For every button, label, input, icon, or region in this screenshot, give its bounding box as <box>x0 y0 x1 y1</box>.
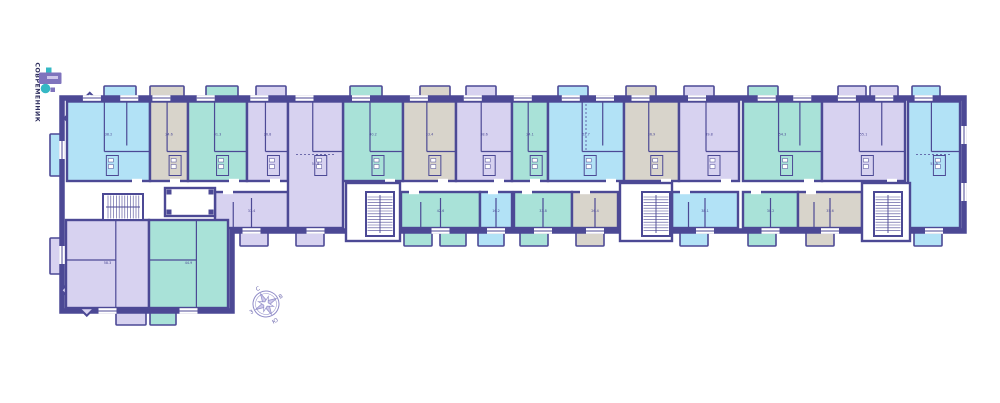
floor-plan-generated: 38.224.641.326.840.233.438.624.152.736.9… <box>50 86 967 325</box>
door-gap <box>409 190 419 194</box>
room-area-label: 24.6 <box>165 133 173 137</box>
logo-icon-circle <box>41 84 51 94</box>
room-area-label: 40.2 <box>369 133 377 137</box>
apartment-unit <box>743 102 822 182</box>
compass-rose: С В Ю З <box>241 278 294 333</box>
door-gap <box>494 179 504 183</box>
door-gap <box>530 179 540 183</box>
door-gap <box>170 179 180 183</box>
apartment-unit <box>343 102 403 182</box>
entrance-vestibule <box>165 188 215 216</box>
bath-fixture <box>108 159 113 163</box>
room-area-label: 16.2 <box>492 209 500 213</box>
room-area-label: 38.2 <box>105 133 113 137</box>
room-area-label: 55.1 <box>860 133 868 137</box>
bath-fixture <box>485 159 490 163</box>
door-gap <box>580 190 590 194</box>
logo-icon-nub <box>51 88 56 93</box>
room-area-label: 26.4 <box>591 209 599 213</box>
bath-fixture <box>108 165 113 169</box>
bath-fixture <box>783 165 788 169</box>
room-area-label: 33.8 <box>539 209 547 213</box>
apartment-unit <box>67 102 150 182</box>
column-post <box>167 190 172 195</box>
bath-fixture <box>374 165 379 169</box>
bath-fixture <box>171 159 176 163</box>
door-gap <box>606 179 616 183</box>
bath-fixture <box>431 159 436 163</box>
room-area-label: 37.4 <box>248 209 256 213</box>
room-area-label: 44.9 <box>185 261 193 265</box>
bath-fixture <box>374 159 379 163</box>
door-gap <box>751 190 761 194</box>
bath-fixture <box>269 165 274 169</box>
room-area-label: 35.6 <box>826 209 834 213</box>
door-gap <box>229 179 239 183</box>
room-area-label: 26.8 <box>264 133 272 137</box>
bath-fixture <box>586 165 591 169</box>
room-area-label: 53.9 <box>930 162 938 166</box>
bath-fixture <box>431 165 436 169</box>
door-gap <box>804 179 814 183</box>
apartment-unit <box>679 102 739 182</box>
column-post <box>167 210 172 215</box>
apartment-unit <box>624 102 679 182</box>
room-area-label: 33.4 <box>426 133 434 137</box>
room-area-label: 38.1 <box>701 209 709 213</box>
room-area-label: 38.6 <box>480 133 488 137</box>
bath-fixture <box>219 165 224 169</box>
door-gap <box>806 190 816 194</box>
bath-fixture <box>653 165 658 169</box>
bath-fixture <box>586 159 591 163</box>
room-area-label: 41.3 <box>214 133 222 137</box>
apartment-unit <box>188 102 247 182</box>
logo: СОВРЕМЕННИК ·························· <box>34 63 62 123</box>
bath-fixture <box>532 159 537 163</box>
bath-fixture <box>171 165 176 169</box>
room-area-label: 51.8 <box>312 162 320 166</box>
apartment-unit <box>456 102 512 182</box>
bath-fixture <box>783 159 788 163</box>
door-gap <box>132 179 142 183</box>
bath-fixture <box>863 159 868 163</box>
column-post <box>209 210 214 215</box>
door-gap <box>270 179 280 183</box>
room-area-label: 24.1 <box>526 133 534 137</box>
door-gap <box>522 190 532 194</box>
bath-fixture <box>710 165 715 169</box>
compass-south-label: Ю <box>271 318 279 326</box>
door-gap <box>223 190 233 194</box>
bath-fixture <box>863 165 868 169</box>
bath-fixture <box>485 165 490 169</box>
bath-fixture <box>269 159 274 163</box>
bath-fixture <box>219 159 224 163</box>
apartment-unit <box>403 102 456 182</box>
room-area-label: 36.9 <box>648 133 656 137</box>
brand-name: СОВРЕМЕННИК <box>34 63 41 123</box>
room-area-label: 39.8 <box>705 133 713 137</box>
compass-east-label: В <box>278 293 284 300</box>
apartment-unit <box>822 102 905 182</box>
room-area-label: 54.3 <box>779 133 787 137</box>
bath-fixture <box>532 165 537 169</box>
floor-plan-page: 38.224.641.326.840.233.438.624.152.736.9… <box>0 0 1000 403</box>
logo-icon-square <box>46 68 52 74</box>
door-gap <box>680 190 690 194</box>
logo-icon-window-band <box>47 76 58 79</box>
room-area-label: 42.6 <box>437 209 445 213</box>
door-gap <box>488 190 498 194</box>
door-gap <box>721 179 731 183</box>
room-area-label: 30.2 <box>767 209 775 213</box>
bath-fixture <box>653 159 658 163</box>
bath-fixture <box>710 159 715 163</box>
floor-plan-canvas: 38.224.641.326.840.233.438.624.152.736.9… <box>0 0 1000 403</box>
room-area-label: 58.3 <box>104 261 112 265</box>
door-gap <box>438 179 448 183</box>
column-post <box>209 190 214 195</box>
